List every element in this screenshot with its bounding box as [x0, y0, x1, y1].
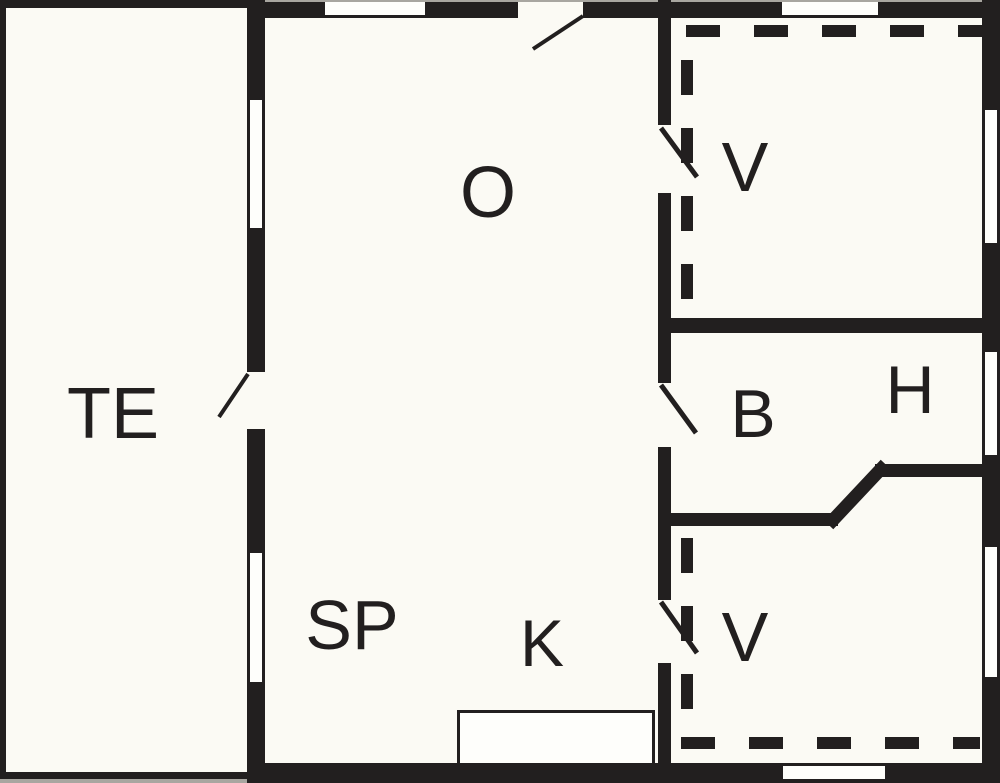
window-top-right — [782, 0, 878, 15]
door-opening-b — [656, 383, 671, 447]
room-label-o: O — [460, 157, 516, 229]
wall-h-bottom — [875, 464, 987, 477]
floor-plan: TE O V B H SP K V — [0, 0, 1000, 783]
wall-diagonal-step — [833, 469, 881, 520]
room-label-h: H — [885, 356, 934, 424]
room-label-v-bottom: V — [722, 602, 769, 672]
dashed-line-v-top-vertical — [681, 60, 693, 310]
dashed-line-v-bottom-horizontal — [681, 737, 980, 749]
room-label-sp: SP — [305, 590, 398, 660]
entrance-door-opening — [518, 0, 583, 18]
entrance-door-swing — [533, 16, 583, 49]
door-opening-v-top — [656, 125, 671, 193]
window-top-left — [325, 0, 425, 15]
door-opening-v-bottom — [656, 600, 671, 663]
room-label-b: B — [730, 380, 775, 448]
kitchen-counter — [457, 710, 655, 763]
top-scan-edge — [247, 0, 1000, 2]
window-bottom — [783, 766, 885, 779]
terrace-left-wall — [0, 0, 6, 780]
window-left-lower — [250, 553, 262, 682]
dashed-line-v-bottom-vertical — [681, 538, 693, 738]
room-label-k: K — [520, 610, 564, 676]
window-left-upper — [250, 100, 262, 228]
terrace-bottom-edge — [0, 779, 247, 783]
bottom-wall — [247, 763, 1000, 783]
window-right-middle — [985, 352, 997, 455]
wall-v-top-b — [658, 318, 1000, 333]
terrace-door-swing — [219, 374, 248, 417]
window-right-lower — [985, 547, 997, 677]
dashed-line-v-top-horizontal — [686, 25, 982, 37]
room-label-te: TE — [67, 378, 159, 450]
room-label-v-top: V — [722, 132, 769, 202]
terrace-top-wall — [0, 0, 247, 8]
terrace-door-opening — [245, 372, 267, 429]
window-right-upper — [985, 110, 997, 243]
wall-b-bottom — [658, 513, 838, 526]
